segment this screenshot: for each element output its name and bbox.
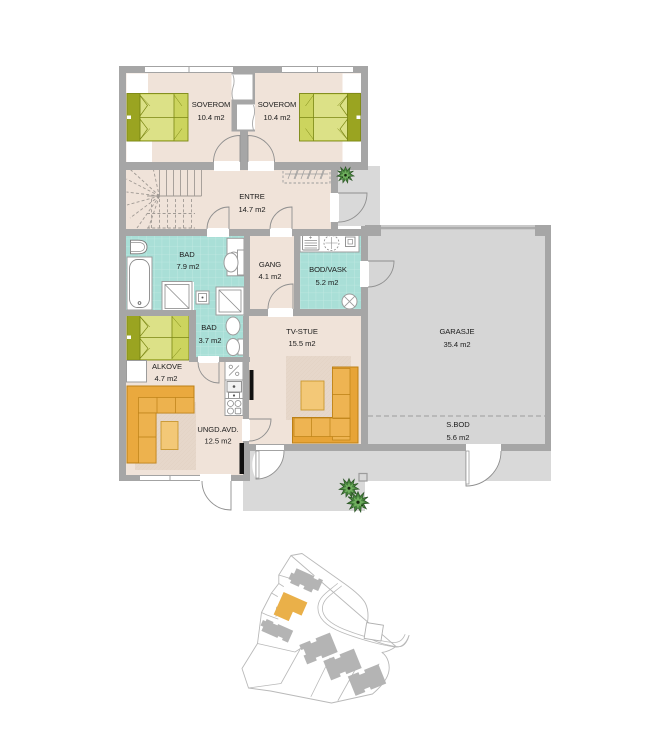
- svg-text:GANG: GANG: [259, 260, 281, 269]
- svg-text:15.5 m2: 15.5 m2: [288, 339, 315, 348]
- svg-text:BOD/VASK: BOD/VASK: [309, 265, 347, 274]
- svg-text:10.4 m2: 10.4 m2: [263, 113, 290, 122]
- svg-text:14.7 m2: 14.7 m2: [238, 205, 265, 214]
- svg-text:5.6 m2: 5.6 m2: [447, 433, 470, 442]
- svg-text:10.4 m2: 10.4 m2: [197, 113, 224, 122]
- svg-text:BAD: BAD: [201, 323, 217, 332]
- svg-text:SOVEROM: SOVEROM: [258, 100, 296, 109]
- svg-text:SOVEROM: SOVEROM: [192, 100, 230, 109]
- svg-text:ALKOVE: ALKOVE: [152, 362, 182, 371]
- svg-text:3.7 m2: 3.7 m2: [199, 336, 222, 345]
- svg-text:7.9 m2: 7.9 m2: [177, 262, 200, 271]
- svg-text:ENTRE: ENTRE: [239, 192, 265, 201]
- svg-text:UNGD.AVD.: UNGD.AVD.: [197, 425, 238, 434]
- svg-text:35.4 m2: 35.4 m2: [443, 340, 470, 349]
- svg-text:TV-STUE: TV-STUE: [286, 327, 318, 336]
- svg-text:5.2 m2: 5.2 m2: [316, 278, 339, 287]
- svg-text:BAD: BAD: [179, 250, 195, 259]
- svg-text:4.1 m2: 4.1 m2: [259, 272, 282, 281]
- svg-text:12.5 m2: 12.5 m2: [204, 437, 231, 446]
- svg-text:GARASJE: GARASJE: [439, 327, 474, 336]
- svg-text:4.7 m2: 4.7 m2: [155, 374, 178, 383]
- svg-text:S.BOD: S.BOD: [446, 420, 470, 429]
